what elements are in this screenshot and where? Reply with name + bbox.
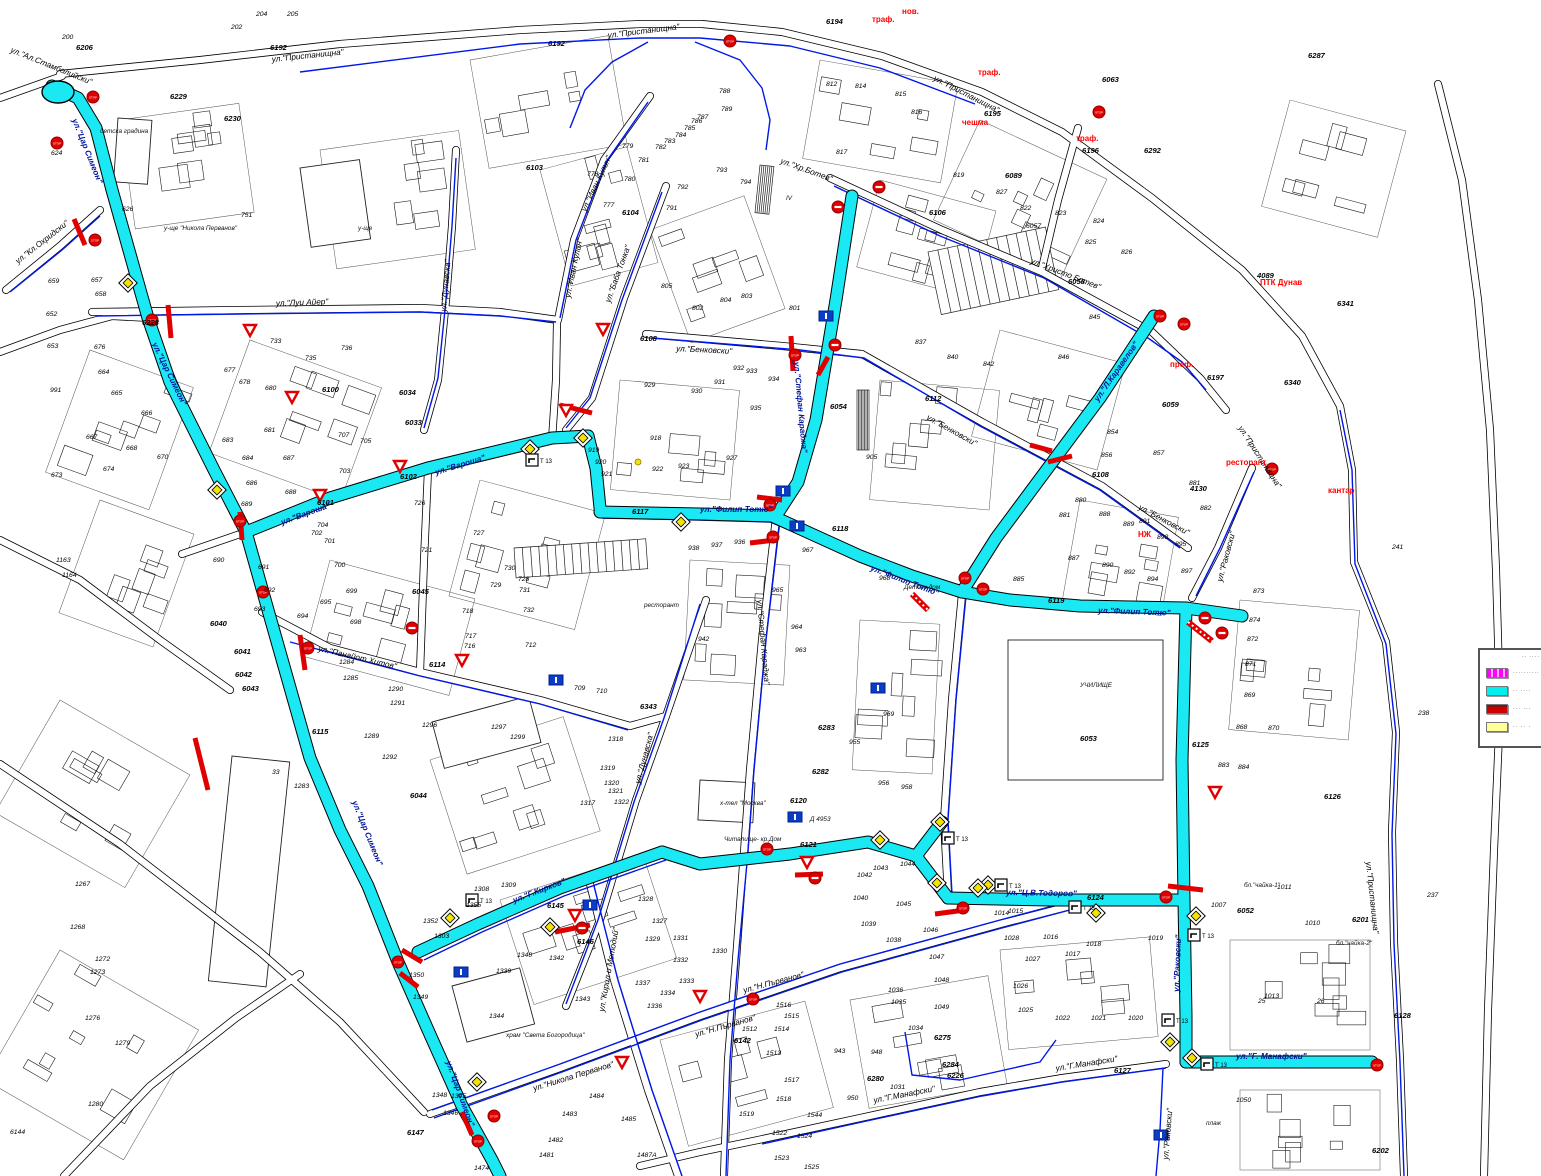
parcel-number-label: 1290: [388, 686, 403, 693]
parcel-number-label: 1014: [994, 910, 1009, 917]
building-footprint: [415, 141, 444, 163]
yield-sign-icon: [286, 392, 298, 403]
red-bar-marker: [1168, 886, 1203, 890]
poi-label: у-ще: [357, 225, 373, 232]
crossing-sign-icon: [1201, 1058, 1213, 1070]
building-footprint: [727, 601, 757, 614]
parcel-number-label: 692: [264, 587, 276, 594]
parcel-number-label: 880: [1075, 497, 1087, 504]
parcel-number-label: 680: [265, 385, 277, 392]
parcel-number-label: 1487А: [637, 1152, 657, 1159]
parcel-number-label: 938: [688, 545, 700, 552]
parcel-number-label: 237: [1426, 892, 1439, 899]
parcel-number-label: 1317: [580, 800, 595, 807]
parcel-number-label: 677: [224, 367, 236, 374]
parcel-number-label: 895: [1175, 541, 1187, 548]
crossing-sign-icon: [1188, 929, 1200, 941]
parcel-number-label: 1022: [1055, 1015, 1070, 1022]
area-code-label: 6343: [640, 702, 658, 711]
parcel-outline: [0, 950, 199, 1160]
parcel-number-label: 687: [283, 455, 295, 462]
parcel-number-label: 624: [51, 150, 63, 157]
main-street: [662, 842, 948, 898]
area-code-label: 6126: [1324, 792, 1342, 801]
parcel-number-label: 1049: [934, 1004, 949, 1011]
parcel-number-label: 802: [692, 305, 704, 312]
parcel-number-label: 1522: [772, 1130, 787, 1137]
parcel-number-label: 827: [996, 189, 1008, 196]
parcel-number-label: 1018: [1086, 941, 1101, 948]
area-code-label: 6100: [322, 385, 340, 394]
parcel-block: [470, 36, 627, 169]
parcel-number-label: 933: [746, 368, 758, 375]
parcel-number-label: 26: [1316, 998, 1325, 1005]
parcel-number-label: 801: [789, 305, 801, 312]
building-footprint: [280, 419, 305, 444]
crossing-sign-label: Т 13: [1176, 1019, 1189, 1025]
parcel-number-label: 1524: [797, 1133, 812, 1140]
parcel-block: [0, 700, 190, 888]
street-name-label: ул."Стефан Караджа": [792, 360, 809, 453]
parcel-outline: [1262, 100, 1406, 237]
large-building-outline: [452, 968, 535, 1042]
parcel-number-label: 205: [286, 11, 299, 18]
parcel-number-label: 731: [519, 587, 531, 594]
building-footprint: [608, 911, 637, 927]
parcel-number-label: 964: [791, 624, 803, 631]
building-footprint: [1336, 132, 1367, 156]
building-footprint: [39, 1053, 55, 1070]
building-footprint: [1102, 998, 1125, 1015]
parcel-number-label: 1013: [1264, 993, 1279, 1000]
parcel-number-label: 905: [866, 454, 878, 461]
building-footprint: [735, 1090, 767, 1107]
parcel-number-label: 1043: [873, 865, 888, 872]
parcel-number-label: 869: [1244, 692, 1256, 699]
main-street-pond: [42, 81, 74, 103]
street-name-label: ул."Филип Тотю": [699, 505, 773, 514]
parcel-number-label: 658: [95, 291, 107, 298]
area-code-label: 6340: [1284, 378, 1302, 387]
area-code-label: 6192: [548, 39, 566, 48]
parcel-number-label: 785: [684, 125, 696, 132]
parcel-number-label: 1280: [88, 1101, 103, 1108]
building-footprint: [669, 434, 700, 456]
parcel-number-label: 1019: [1148, 935, 1163, 942]
building-footprint: [23, 1059, 52, 1081]
building-footprint: [712, 250, 739, 267]
parcel-block: [1240, 1090, 1380, 1170]
parcel-number-label: 793: [716, 167, 728, 174]
building-footprint: [139, 415, 160, 433]
water-pipe-line: [695, 42, 770, 150]
building-footprint: [855, 715, 883, 739]
parcel-number-label: 1268: [70, 924, 85, 931]
parcel-number-label: 822: [1020, 205, 1032, 212]
parcel-number-label: 1319: [600, 765, 615, 772]
red-bar-marker: [195, 738, 208, 790]
street-name-label: ул."Бенковски": [675, 344, 734, 356]
stop-sign-text: STOP: [474, 1139, 482, 1143]
yield-sign-icon: [801, 857, 813, 868]
parcel-number-label: 883: [1218, 762, 1230, 769]
parcel-number-label: 1038: [886, 937, 901, 944]
yield-sign-icon: [560, 405, 572, 416]
area-code-label: 6275: [934, 1033, 952, 1042]
building-footprint: [1095, 545, 1108, 555]
parcel-number-label: 782: [655, 144, 667, 151]
building-footprint: [971, 190, 984, 202]
building-footprint: [159, 164, 191, 191]
stop-sign-text: STOP: [1156, 314, 1164, 318]
parcel-number-label: 1050: [1236, 1097, 1251, 1104]
area-code-label: 6194: [826, 17, 844, 26]
area-code-label: 6052: [1237, 906, 1255, 915]
parcel-number-label: 698: [350, 619, 362, 626]
road: [182, 532, 246, 554]
building-footprint: [608, 170, 622, 183]
building-footprint: [564, 71, 578, 88]
parcel-number-label: 718: [462, 608, 474, 615]
parcel-number-label: 1344: [489, 1013, 504, 1020]
building-footprint: [910, 137, 938, 155]
area-code-label: 6283: [818, 723, 836, 732]
area-code-label: 6121: [800, 840, 817, 849]
parcel-number-label: 846: [1058, 354, 1070, 361]
parcel-number-label: 666: [141, 410, 153, 417]
parcel-number-label: 1015: [1008, 908, 1023, 915]
area-code-label: 6201: [1352, 915, 1369, 924]
parcel-number-label: 727: [473, 530, 485, 537]
street-name-label: ул."Ц.В.Тодоров": [1005, 888, 1077, 898]
building-footprint: [1273, 1150, 1290, 1168]
parcel-number-label: 1343: [575, 996, 590, 1003]
building-footprint: [69, 1031, 85, 1045]
stop-sign-text: STOP: [304, 646, 312, 650]
area-code-label: 6226: [947, 1071, 965, 1080]
parcel-number-label: 712: [525, 642, 537, 649]
road: [92, 308, 558, 320]
parcel-number-label: 788: [719, 88, 731, 95]
building-footprint: [411, 139, 424, 155]
main-street: [776, 196, 852, 516]
building-footprint: [119, 421, 139, 438]
parcel-number-label: 931: [714, 379, 726, 386]
parcel-number-label: 664: [98, 369, 110, 376]
crossing-sign-label: Т 13: [480, 899, 493, 905]
building-footprint: [908, 423, 929, 447]
parcel-number-label: 736: [341, 345, 353, 352]
stop-sign-text: STOP: [91, 238, 99, 242]
building-footprint: [1037, 424, 1058, 440]
building-footprint: [680, 468, 703, 483]
parcel-number-label: 652: [46, 311, 58, 318]
stop-sign-text: STOP: [1095, 110, 1103, 114]
road: [262, 612, 666, 726]
parcel-number-label: 777: [603, 202, 615, 209]
parcel-number-label: 1016: [1043, 934, 1058, 941]
building-footprint: [1324, 978, 1339, 999]
poi-label: УЧИЛИЩЕ: [1079, 682, 1113, 689]
parcel-number-label: 1513: [766, 1050, 781, 1057]
yield-sign-icon: [597, 324, 609, 335]
parcel-number-label: 1044: [900, 861, 915, 868]
road: [262, 612, 666, 726]
parcel-number-label: 955: [849, 739, 861, 746]
building-footprint: [143, 594, 168, 614]
parcel-block: [610, 380, 739, 500]
crossing-sign-label: Т 13: [540, 459, 553, 465]
building-footprint: [1280, 1120, 1300, 1138]
legend-swatch-cyan: [1486, 686, 1508, 696]
building-footprint: [417, 168, 446, 192]
building-footprint: [710, 654, 736, 675]
parcel-number-label: 1034: [908, 1025, 923, 1032]
building-footprint: [892, 443, 907, 464]
red-annotation-label: преф.: [1170, 360, 1193, 369]
parcel-number-label: 872: [1247, 636, 1259, 643]
parcel-number-label: 200: [61, 34, 74, 41]
parcel-number-label: 703: [339, 468, 351, 475]
building-footprint: [1334, 197, 1366, 213]
building-footprint: [467, 543, 485, 563]
parcel-number-label: 238: [1417, 710, 1430, 717]
area-code-label: 6115: [312, 727, 329, 736]
road: [0, 540, 230, 690]
parcel-number-label: 1328: [638, 896, 653, 903]
parcel-number-label: 1340: [517, 952, 532, 959]
parcel-number-label: 884: [1238, 764, 1250, 771]
parcel-number-label: 1327: [652, 918, 667, 925]
yield-sign-icon: [616, 1057, 628, 1068]
rowhouse-strip: [514, 539, 648, 578]
parcel-number-label: 25: [1257, 998, 1266, 1005]
building-footprint: [888, 253, 920, 273]
red-bar-marker: [168, 305, 171, 338]
area-code-label: 6118: [832, 524, 849, 533]
building-footprint: [912, 262, 929, 283]
building-footprint: [1267, 1094, 1281, 1112]
stop-sign-text: STOP: [763, 847, 771, 851]
area-code-label: 6106: [929, 208, 947, 217]
parcel-number-label: 937: [711, 542, 723, 549]
building-footprint: [1301, 953, 1318, 964]
parcel-number-label: 891: [1139, 518, 1151, 525]
red-annotation-label: чешма: [962, 118, 989, 127]
parcel-number-label: 942: [698, 636, 710, 643]
parcel-number-label: 1349: [413, 994, 428, 1001]
parcel-number-label: 1273: [90, 969, 105, 976]
building-footprint: [658, 229, 684, 247]
poi-label: Читалище- кр.Дом: [724, 836, 782, 843]
parcel-number-label: 1267: [75, 881, 90, 888]
building-footprint: [342, 385, 376, 414]
street-name-label: ул."Панайот Хитов": [317, 644, 399, 671]
parcel-number-label: 890: [1102, 562, 1114, 569]
crossing-sign-icon: [526, 454, 538, 466]
parcel-number-label: 699: [346, 588, 358, 595]
parcel-outline: [0, 700, 190, 888]
crossing-sign-label: Т 13: [1215, 1063, 1228, 1069]
building-footprint: [1315, 1003, 1339, 1016]
parcel-number-label: 922: [652, 466, 664, 473]
large-building-outline: [300, 160, 371, 248]
main-street: [948, 898, 1184, 900]
stop-sign-text: STOP: [53, 141, 61, 145]
parcel-number-label: 787: [697, 114, 709, 121]
parcel-number-label: 710: [596, 688, 608, 695]
parcel-number-label: 963: [795, 647, 807, 654]
building-footprint: [92, 422, 127, 451]
building-footprint: [290, 366, 317, 388]
building-footprint: [617, 462, 632, 475]
crossing-sign-label: Т 13: [1202, 934, 1215, 940]
parcel-number-label: 1514: [774, 1026, 789, 1033]
parcel-number-label: 1289: [364, 733, 379, 740]
parcel-number-label: 1519: [739, 1111, 754, 1118]
parcel-block: [0, 950, 199, 1160]
building-footprint: [1009, 393, 1040, 409]
building-footprint: [735, 575, 764, 598]
area-code-label: 6102: [400, 472, 418, 481]
parcel-number-label: 1040: [853, 895, 868, 902]
area-code-label: 6287: [1308, 51, 1326, 60]
parcel-number-label: 1048: [934, 977, 949, 984]
parcel-number-label: 693: [254, 606, 266, 613]
area-code-label: 6059: [1162, 400, 1180, 409]
area-code-label: 6145: [547, 901, 565, 910]
parcel-outline: [209, 340, 382, 501]
building-footprint: [870, 143, 895, 158]
area-code-label: 6147: [407, 1128, 425, 1137]
parcel-number-label: 856: [1101, 452, 1113, 459]
parcel-number-label: 1481: [539, 1152, 554, 1159]
area-code-label: 6292: [1144, 146, 1162, 155]
building-footprint: [594, 224, 611, 246]
poi-label: бл."чайка-2": [1336, 939, 1373, 947]
parcel-number-label: 874: [1249, 617, 1261, 624]
building-footprint: [568, 91, 580, 102]
area-code-label: 6230: [224, 114, 242, 123]
parcel-number-label: 1017: [1065, 951, 1080, 958]
parcel-number-label: 803: [741, 293, 753, 300]
legend-item-magenta: ··········: [1486, 664, 1541, 682]
building-footprint: [63, 751, 100, 784]
parcel-number-label: 837: [915, 339, 927, 346]
parcel-number-label: 1308: [474, 886, 489, 893]
red-annotation-label: траф.: [978, 68, 1000, 77]
parcel-number-label: 857: [1153, 450, 1165, 457]
area-code-label: 6041: [234, 647, 251, 656]
building-footprint: [491, 501, 505, 515]
parcel-number-label: 1517: [784, 1077, 799, 1084]
building-footprint: [33, 995, 53, 1011]
parcel-number-label: 1482: [548, 1137, 563, 1144]
parcel-number-label: 716: [464, 643, 476, 650]
parcel-number-label: 991: [50, 387, 62, 394]
parcel-number-label: 241: [1391, 544, 1404, 551]
stop-sign-text: STOP: [236, 519, 244, 523]
stop-sign-text: STOP: [749, 997, 757, 1001]
city-map[interactable]: Т 13Т 13Т 13Т 13Т 13Т 13Т 13Т 13STOPSTOP…: [0, 0, 1541, 1176]
area-code-label: 6112: [925, 394, 942, 403]
building-footprint: [484, 118, 500, 134]
parcel-number-label: 721: [421, 547, 433, 554]
stop-sign-text: STOP: [394, 960, 402, 964]
building-footprint: [414, 211, 440, 230]
building-footprint: [177, 160, 204, 183]
stop-sign-text: STOP: [726, 39, 734, 43]
parcel-number-label: 956: [878, 780, 890, 787]
area-code-label: 6108: [1092, 470, 1110, 479]
parcel-number-label: 791: [666, 205, 678, 212]
parcel-number-label: 1318: [608, 736, 623, 743]
parcel-number-label: 882: [1200, 505, 1212, 512]
building-footprint: [1303, 688, 1332, 700]
building-footprint: [679, 1061, 702, 1082]
area-code-label: 6117: [632, 507, 649, 516]
street-name-label: ул."Л.Каравелов": [1092, 340, 1141, 404]
parcel-number-label: 1337: [635, 980, 650, 987]
parcel-number-label: 705: [360, 438, 372, 445]
building-footprint: [1066, 958, 1092, 980]
parcel-number-label: 935: [750, 405, 762, 412]
parcel-number-label: 814: [855, 83, 867, 90]
building-footprint: [695, 644, 706, 662]
parcel-number-label: 1350: [409, 972, 424, 979]
building-footprint: [1299, 140, 1329, 161]
stop-sign-text: STOP: [769, 535, 777, 539]
red-annotation-label: траф.: [1076, 134, 1098, 143]
parcel-number-label: 1352: [423, 918, 438, 925]
legend-swatch-yellow: [1486, 722, 1508, 732]
parcel-number-label: 701: [324, 538, 336, 545]
building-footprint: [891, 673, 903, 696]
street-name-label: ул."Хр.Ботев": [778, 156, 834, 184]
building-footprint: [917, 1059, 942, 1075]
legend-label-red: ··· ···: [1513, 706, 1531, 712]
main-street: [52, 86, 500, 1176]
parcel-number-label: 783: [664, 138, 676, 145]
parcel-number-label: 686: [246, 480, 258, 487]
building-footprint: [527, 809, 545, 828]
parcel-number-label: 1525: [804, 1164, 819, 1171]
parcel-number-label: 967: [802, 547, 814, 554]
building-footprint: [460, 570, 480, 593]
area-code-label: 6044: [410, 791, 428, 800]
crossing-sign-icon: [942, 832, 954, 844]
building-footprint: [1337, 1011, 1366, 1025]
building-footprint: [1334, 1105, 1350, 1125]
parcel-number-label: 1047: [929, 954, 944, 961]
building-footprint: [83, 751, 104, 774]
area-code-label: 6206: [76, 43, 94, 52]
parcel-number-label: 892: [1124, 569, 1136, 576]
main-street: [418, 852, 662, 952]
red-annotation-label: кантар: [1328, 486, 1355, 495]
poi-label: IV: [786, 195, 793, 202]
parcel-number-label: 657: [91, 277, 103, 284]
area-code-label: 6120: [790, 796, 808, 805]
parcel-number-label: 842: [983, 361, 995, 368]
street-name-label: ул."Филип Тотю": [1097, 606, 1171, 618]
parcel-number-label: 659: [48, 278, 60, 285]
building-footprint: [839, 103, 871, 126]
legend-label-cyan: ·· ····: [1513, 688, 1531, 694]
building-footprint: [460, 837, 477, 852]
building-footprint: [380, 590, 403, 616]
stop-sign-text: STOP: [89, 95, 97, 99]
